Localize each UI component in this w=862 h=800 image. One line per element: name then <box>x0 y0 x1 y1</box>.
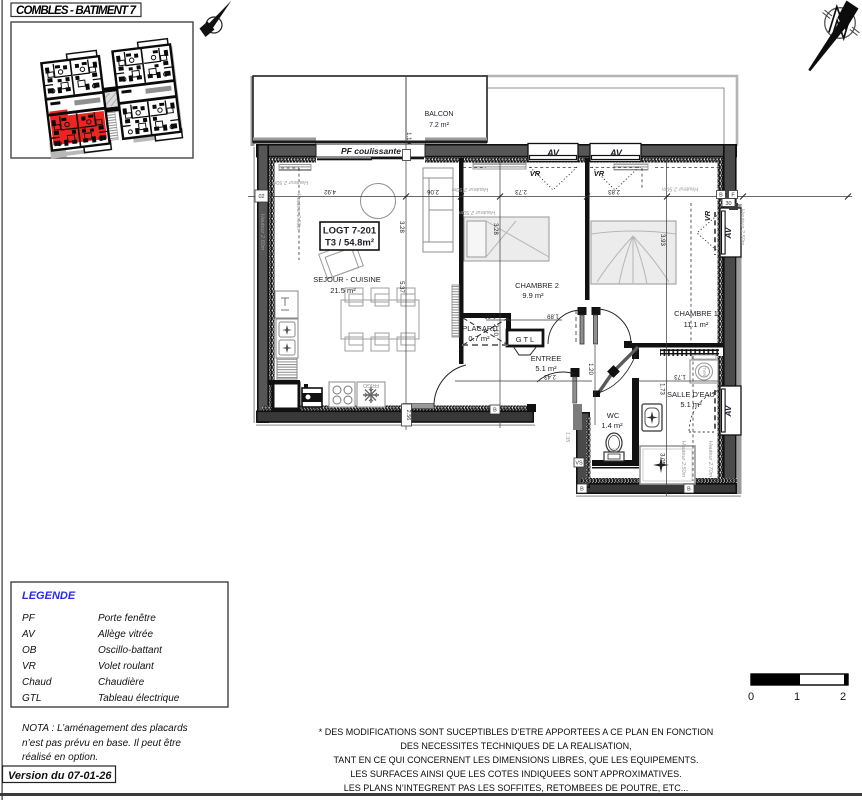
svg-text:SEJOUR - CUISINE: SEJOUR - CUISINE <box>313 275 381 284</box>
svg-text:Oscillo-battant: Oscillo-battant <box>98 645 163 656</box>
svg-text:Hauteur 2.70m: Hauteur 2.70m <box>707 441 713 478</box>
svg-text:3.93: 3.93 <box>659 234 665 246</box>
svg-text:5.1 m²: 5.1 m² <box>535 364 557 373</box>
svg-text:1.73: 1.73 <box>674 373 686 379</box>
svg-text:Hauteur 2.50m: Hauteur 2.50m <box>661 186 698 192</box>
svg-text:AV: AV <box>723 404 733 418</box>
svg-text:3.28: 3.28 <box>398 221 404 233</box>
svg-text:3.05: 3.05 <box>659 453 665 465</box>
svg-text:2.83: 2.83 <box>608 188 620 194</box>
svg-text:0.7 m²: 0.7 m² <box>468 334 490 343</box>
svg-text:Hauteur 2.50m: Hauteur 2.50m <box>451 186 488 192</box>
svg-text:Chaudière: Chaudière <box>98 677 145 688</box>
svg-text:GTL: GTL <box>22 693 41 704</box>
svg-text:TANT EN CE QUI CONCERNENT LES: TANT EN CE QUI CONCERNENT LES DIMENSIONS… <box>333 755 698 765</box>
svg-text:AV: AV <box>21 629 36 640</box>
svg-text:BALCON: BALCON <box>425 111 454 118</box>
svg-text:réalisé en option.: réalisé en option. <box>22 752 98 763</box>
svg-text:MAL: MAL <box>702 366 707 376</box>
svg-text:3.28: 3.28 <box>492 223 498 235</box>
svg-text:5.1 m²: 5.1 m² <box>680 400 702 409</box>
svg-text:2.06: 2.06 <box>427 188 439 194</box>
svg-text:Version du 07-01-26: Version du 07-01-26 <box>8 770 112 782</box>
svg-text:G T L: G T L <box>516 335 534 344</box>
svg-text:LES SURFACES AINSI QUE LES COT: LES SURFACES AINSI QUE LES COTES INDIQUE… <box>350 769 681 779</box>
svg-text:4.92: 4.92 <box>324 188 336 194</box>
svg-text:FRIGO: FRIGO <box>363 382 379 388</box>
svg-text:VS: VS <box>575 461 583 467</box>
svg-text:0: 0 <box>748 691 754 703</box>
svg-text:1.73: 1.73 <box>659 383 665 395</box>
svg-text:PF: PF <box>22 613 36 624</box>
svg-text:SALLE D’EAU: SALLE D’EAU <box>667 390 715 399</box>
svg-text:1.10: 1.10 <box>405 132 411 144</box>
svg-text:ENTREE: ENTREE <box>531 354 561 363</box>
svg-text:11.1 m²: 11.1 m² <box>684 320 709 329</box>
svg-text:CHAMBRE 1: CHAMBRE 1 <box>674 309 718 318</box>
svg-text:5.37: 5.37 <box>398 281 404 293</box>
svg-text:B: B <box>580 487 584 493</box>
svg-text:Hauteur 2.50m: Hauteur 2.50m <box>739 209 745 246</box>
svg-text:WC: WC <box>607 411 620 420</box>
svg-text:B: B <box>719 193 723 199</box>
svg-text:1.00: 1.00 <box>609 448 618 453</box>
svg-text:VR: VR <box>22 661 36 672</box>
svg-text:B: B <box>687 487 691 493</box>
svg-text:1.20: 1.20 <box>587 363 593 375</box>
svg-text:* DES MODIFICATIONS SONT SUCEP: * DES MODIFICATIONS SONT SUCEPTIBLES D’E… <box>319 727 714 737</box>
svg-text:n’est pas prévu en base. Il pe: n’est pas prévu en base. Il peut être <box>22 738 181 749</box>
svg-text:LES PLANS N’INTEGRENT PAS LES: LES PLANS N’INTEGRENT PAS LES SOFFITES, … <box>344 783 689 793</box>
svg-text:Hauteur 2.60m: Hauteur 2.60m <box>259 214 265 251</box>
svg-text:1.00: 1.00 <box>484 313 496 319</box>
svg-text:T3 / 54.8m²: T3 / 54.8m² <box>325 238 374 249</box>
svg-text:VR: VR <box>530 169 541 178</box>
svg-text:B: B <box>493 408 497 414</box>
svg-text:Tableau électrique: Tableau électrique <box>98 693 180 704</box>
svg-text:2: 2 <box>840 691 846 703</box>
svg-text:DES NECESSITES TECHNIQUES DE L: DES NECESSITES TECHNIQUES DE LA REALISAT… <box>400 741 631 751</box>
svg-text:1.4 m²: 1.4 m² <box>601 421 623 430</box>
svg-text:Hauteur 2.50m: Hauteur 2.50m <box>295 194 301 231</box>
svg-text:02: 02 <box>258 194 264 200</box>
svg-text:2.73: 2.73 <box>515 188 527 194</box>
svg-text:Volet roulant: Volet roulant <box>98 661 155 672</box>
svg-text:OB: OB <box>22 645 37 656</box>
svg-text:Porte fenêtre: Porte fenêtre <box>98 613 156 624</box>
svg-text:2.56: 2.56 <box>405 410 411 421</box>
svg-text:LOGT 7-201: LOGT 7-201 <box>323 226 377 237</box>
svg-text:Hauteur 2.50m: Hauteur 2.50m <box>458 209 495 215</box>
svg-text:PF coulissante: PF coulissante <box>341 146 401 156</box>
svg-text:1: 1 <box>794 691 800 703</box>
svg-text:Allège vitrée: Allège vitrée <box>97 629 153 640</box>
svg-text:7.2 m²: 7.2 m² <box>429 122 450 129</box>
svg-text:VR: VR <box>703 210 712 221</box>
svg-text:AV: AV <box>723 226 733 240</box>
svg-text:Hauteur 2.50m: Hauteur 2.50m <box>271 179 308 185</box>
svg-text:9.9 m²: 9.9 m² <box>522 291 544 300</box>
svg-text:21.5 m²: 21.5 m² <box>330 286 356 295</box>
svg-text:COMBLES - BATIMENT 7: COMBLES - BATIMENT 7 <box>16 5 137 17</box>
svg-text:NOTA : L’aménagement des placa: NOTA : L’aménagement des placards <box>22 723 188 734</box>
svg-text:PLACARD: PLACARD <box>462 324 498 333</box>
svg-text:1.89: 1.89 <box>547 313 559 319</box>
svg-text:1.35: 1.35 <box>564 432 570 444</box>
svg-text:Hauteur 2.50m: Hauteur 2.50m <box>680 441 686 478</box>
svg-text:LEGENDE: LEGENDE <box>22 590 76 602</box>
svg-text:AV: AV <box>609 148 623 158</box>
svg-text:2.43: 2.43 <box>544 373 556 379</box>
svg-text:AV: AV <box>546 148 560 158</box>
svg-text:Chaud: Chaud <box>22 677 52 688</box>
svg-text:30: 30 <box>725 201 731 207</box>
svg-text:CHAMBRE 2: CHAMBRE 2 <box>515 281 559 290</box>
svg-text:VR: VR <box>594 169 605 178</box>
